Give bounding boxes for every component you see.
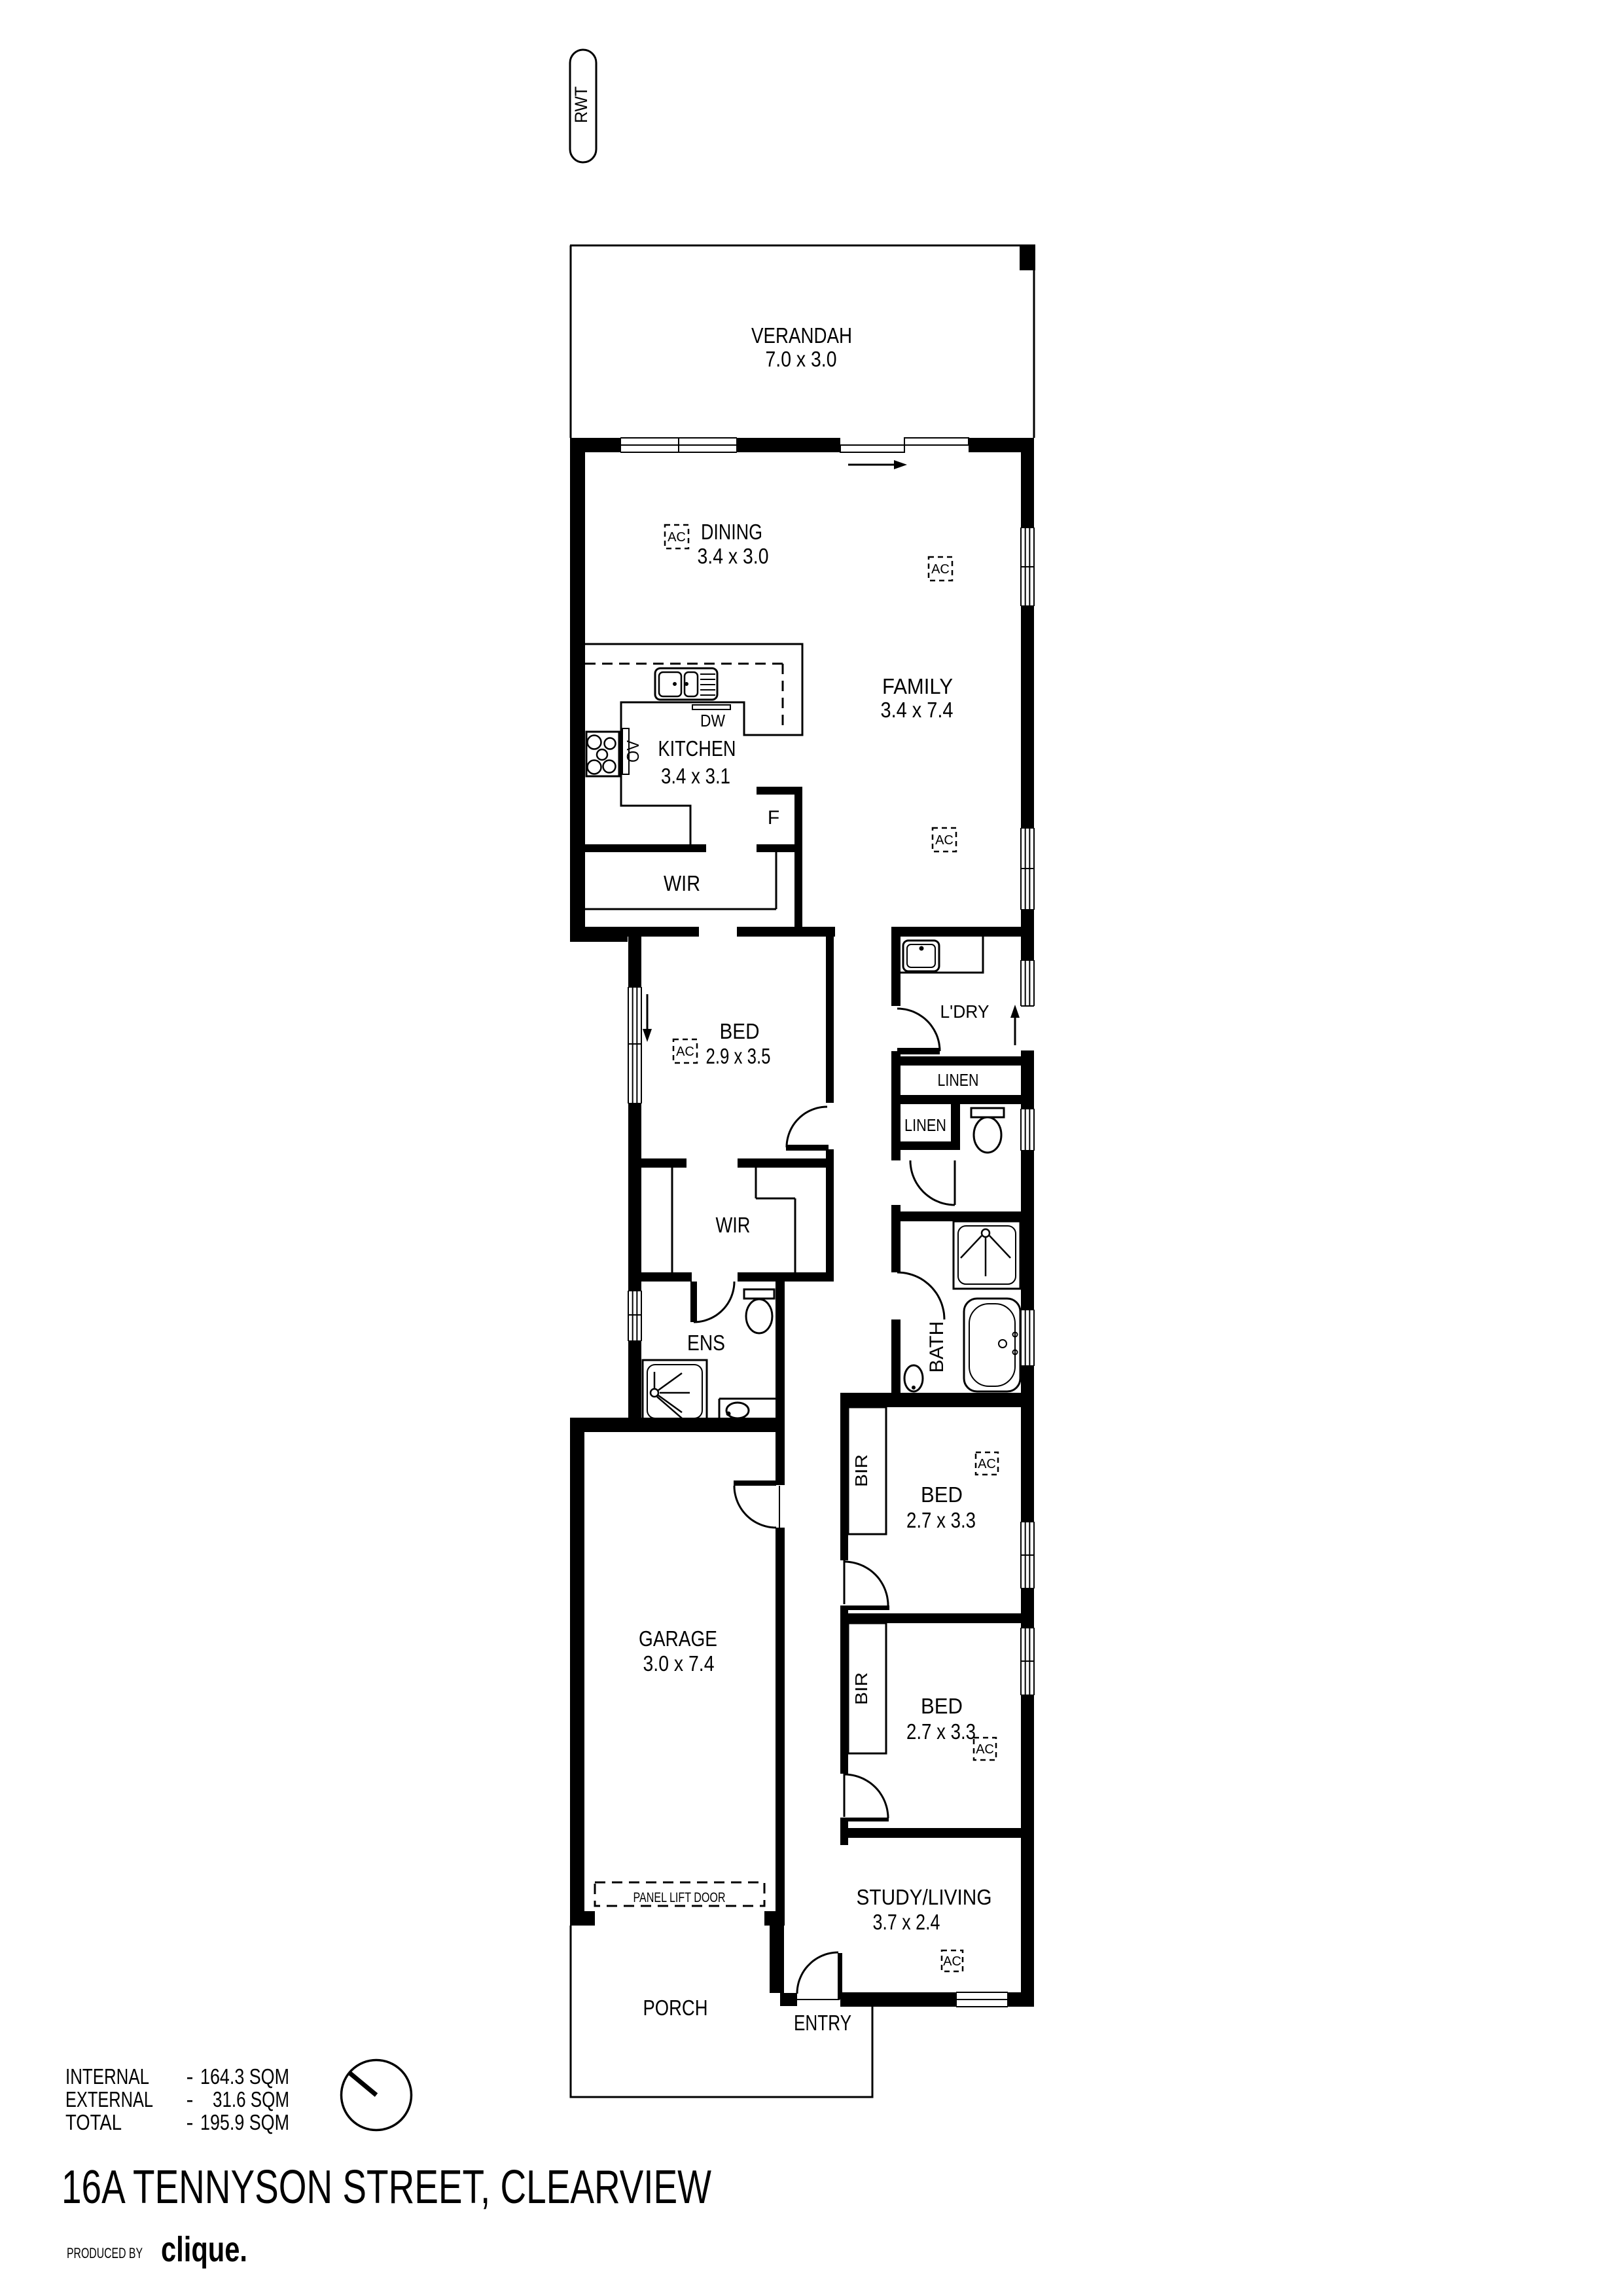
svg-text:BED: BED: [921, 1694, 963, 1718]
svg-text:2.9 x 3.5: 2.9 x 3.5: [706, 1044, 771, 1068]
svg-text:-: -: [187, 2110, 194, 2134]
svg-text:ENS: ENS: [687, 1331, 725, 1355]
svg-text:3.7 x 2.4: 3.7 x 2.4: [873, 1910, 940, 1934]
svg-text:3.4 x 7.4: 3.4 x 7.4: [881, 698, 954, 722]
svg-text:AC: AC: [668, 530, 686, 545]
svg-text:DINING: DINING: [701, 520, 762, 544]
svg-text:PANEL LIFT DOOR: PANEL LIFT DOOR: [633, 1890, 726, 1905]
svg-text:PORCH: PORCH: [643, 1996, 708, 2020]
svg-text:KITCHEN: KITCHEN: [658, 736, 736, 761]
svg-text:2.7 x 3.3: 2.7 x 3.3: [906, 1508, 976, 1532]
svg-text:2.7 x 3.3: 2.7 x 3.3: [906, 1719, 976, 1744]
svg-text:195.9 SQM: 195.9 SQM: [200, 2110, 289, 2134]
svg-text:BIR: BIR: [851, 1454, 871, 1487]
svg-text:WIR: WIR: [664, 871, 700, 895]
svg-text:RWT: RWT: [571, 86, 591, 123]
svg-text:F: F: [768, 807, 779, 829]
svg-text:3.4 x 3.1: 3.4 x 3.1: [661, 764, 730, 788]
svg-text:DW: DW: [700, 711, 725, 730]
svg-text:L'DRY: L'DRY: [940, 1001, 990, 1022]
svg-text:3.0 x 7.4: 3.0 x 7.4: [643, 1651, 715, 1676]
svg-text:LINEN: LINEN: [904, 1115, 946, 1135]
svg-text:BED: BED: [921, 1482, 963, 1507]
svg-text:AC: AC: [978, 1457, 996, 1471]
svg-text:PRODUCED BY: PRODUCED BY: [67, 2245, 143, 2261]
svg-text:GARAGE: GARAGE: [639, 1626, 717, 1651]
svg-text:INTERNAL: INTERNAL: [65, 2064, 149, 2089]
svg-text:AC: AC: [676, 1045, 694, 1059]
svg-text:-: -: [187, 2087, 194, 2111]
svg-text:BATH: BATH: [926, 1321, 948, 1373]
svg-text:EXTERNAL: EXTERNAL: [65, 2087, 153, 2111]
svg-text:clique.: clique.: [161, 2230, 247, 2269]
svg-text:ENTRY: ENTRY: [794, 2011, 851, 2035]
svg-text:TOTAL: TOTAL: [65, 2110, 122, 2134]
svg-text:LINEN: LINEN: [938, 1070, 979, 1090]
svg-text:BED: BED: [720, 1019, 760, 1043]
svg-text:164.3 SQM: 164.3 SQM: [200, 2064, 289, 2089]
svg-text:BIR: BIR: [851, 1672, 871, 1705]
svg-text:OV: OV: [623, 740, 643, 762]
svg-text:3.4 x 3.0: 3.4 x 3.0: [698, 544, 769, 568]
svg-text:16A TENNYSON STREET, CLEARVIEW: 16A TENNYSON STREET, CLEARVIEW: [62, 2161, 711, 2214]
svg-text:VERANDAH: VERANDAH: [751, 323, 852, 348]
svg-text:WIR: WIR: [716, 1213, 751, 1237]
svg-text:AC: AC: [976, 1742, 994, 1757]
svg-text:-: -: [187, 2064, 194, 2089]
svg-text:FAMILY: FAMILY: [882, 674, 953, 698]
svg-text:31.6 SQM: 31.6 SQM: [213, 2087, 289, 2111]
svg-text:AC: AC: [935, 833, 954, 848]
svg-text:STUDY/LIVING: STUDY/LIVING: [857, 1885, 992, 1909]
svg-text:7.0 x 3.0: 7.0 x 3.0: [766, 347, 837, 371]
svg-text:AC: AC: [931, 562, 950, 577]
svg-text:AC: AC: [943, 1954, 961, 1969]
